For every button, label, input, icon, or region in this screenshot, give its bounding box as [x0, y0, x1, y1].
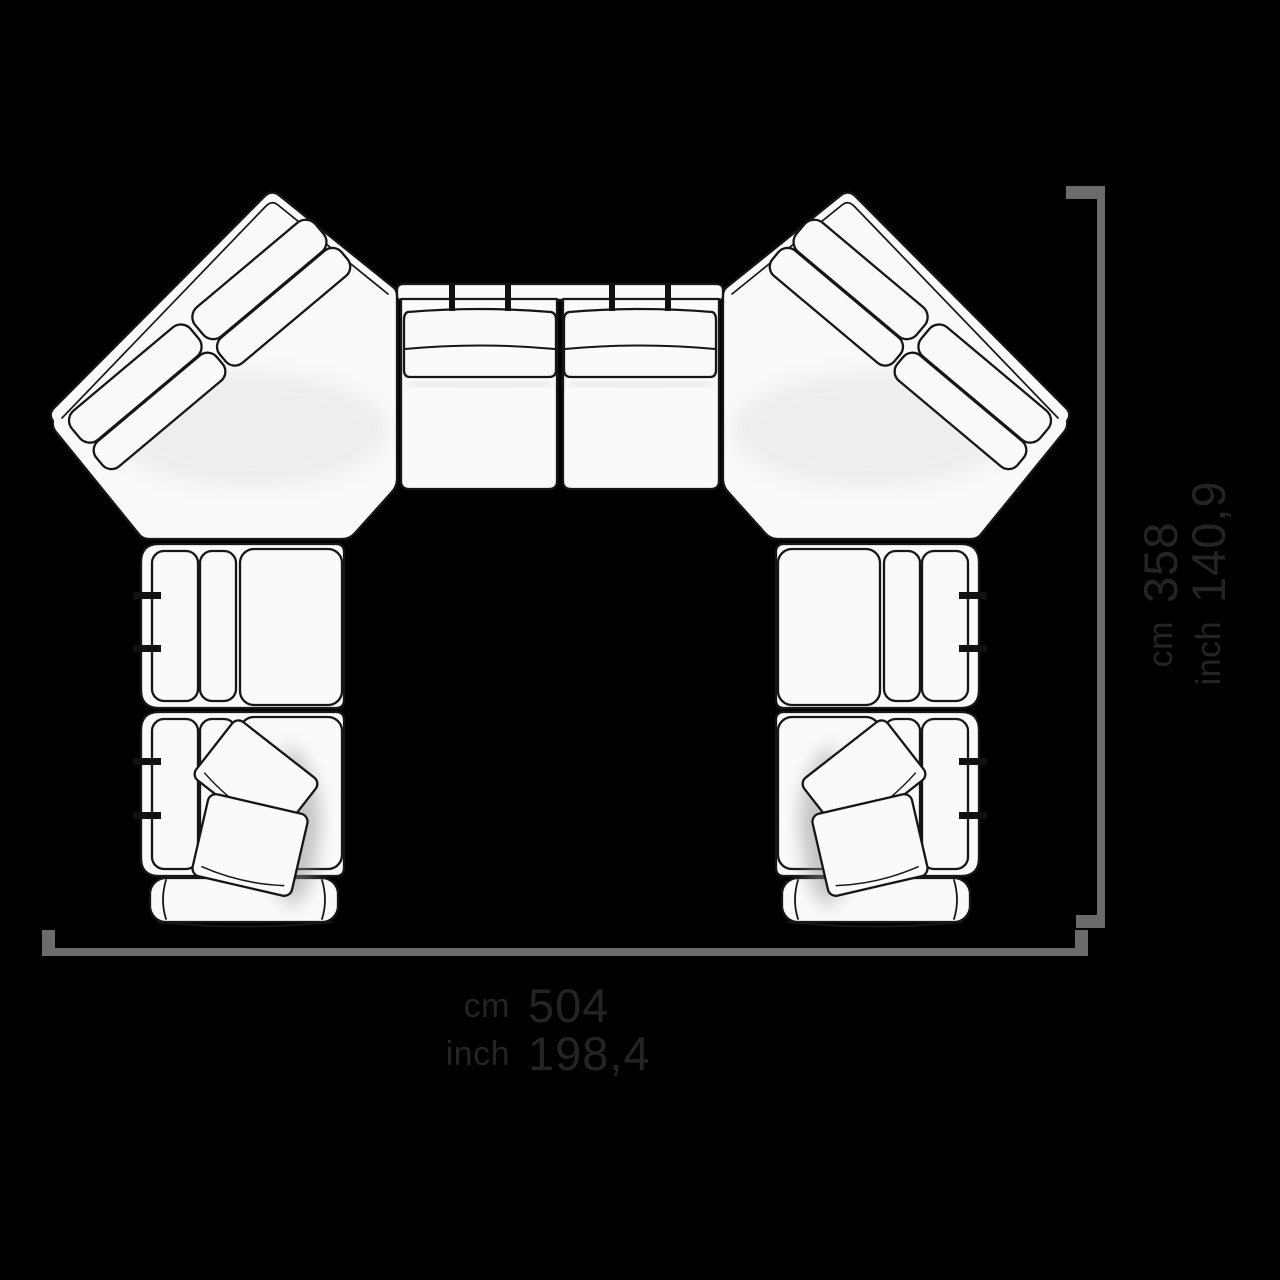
depth-dimension-label: cm 358 inch 140,9: [1137, 453, 1233, 713]
sofa-left-half: [51, 193, 557, 927]
depth-unit-inch: inch: [1185, 621, 1233, 713]
center-seat-module: [401, 285, 557, 489]
center-back-panel: [397, 284, 723, 300]
depth-dimension-line: [1066, 186, 1105, 928]
connector-tick: [505, 285, 511, 311]
width-dimension-line: [42, 930, 1088, 956]
sofa-right-half: [563, 193, 1069, 927]
depth-unit-cm: cm: [1137, 621, 1185, 713]
width-unit-cm: cm: [418, 982, 510, 1030]
width-value-inch: 198,4: [528, 1030, 678, 1078]
sofa-top-view-diagram: [0, 0, 1280, 1280]
depth-value-cm: 358: [1137, 453, 1185, 603]
diagram-canvas: cm 504 inch 198,4 cm 358 inch 140,9: [0, 0, 1280, 1280]
width-unit-inch: inch: [418, 1030, 510, 1078]
width-value-cm: 504: [528, 982, 678, 1030]
depth-value-inch: 140,9: [1185, 453, 1233, 603]
connector-tick: [449, 285, 455, 311]
width-dimension-label: cm 504 inch 198,4: [418, 982, 678, 1078]
corner-module: [51, 193, 397, 540]
arm-column: [133, 544, 344, 927]
